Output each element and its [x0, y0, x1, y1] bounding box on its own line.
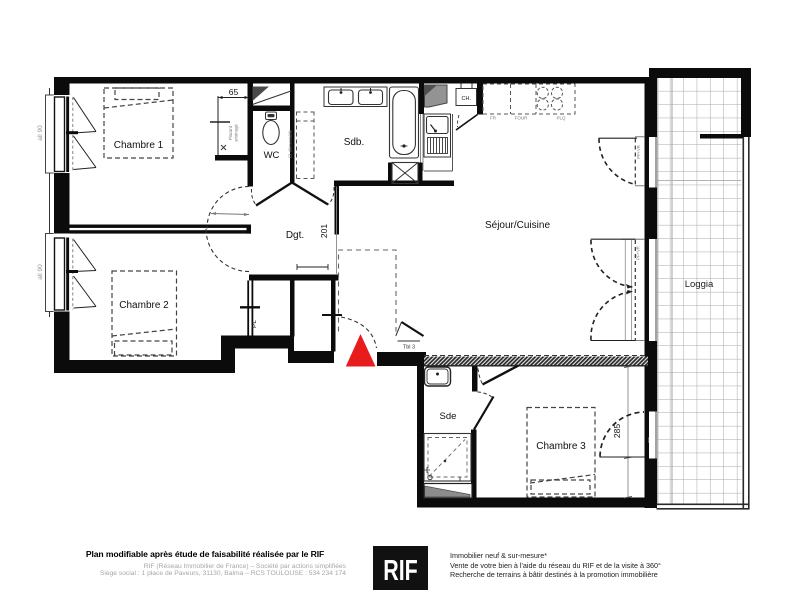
- svg-text:201: 201: [319, 224, 329, 238]
- svg-text:65: 65: [229, 87, 239, 97]
- svg-text:CH.: CH.: [462, 96, 472, 102]
- svg-text:Séjour/Cuisine: Séjour/Cuisine: [485, 220, 550, 231]
- svg-text:PF+VR: PF+VR: [636, 145, 641, 159]
- svg-text:FR: FR: [490, 116, 497, 121]
- svg-text:all 90: all 90: [37, 125, 44, 141]
- svg-text:Sde: Sde: [440, 411, 457, 422]
- svg-text:Cl. démontable: Cl. démontable: [288, 129, 293, 158]
- svg-text:PF: PF: [648, 437, 653, 443]
- svg-text:PF+VR: PF+VR: [636, 246, 641, 260]
- svg-text:PL: PL: [251, 320, 258, 328]
- svg-text:Loggia: Loggia: [685, 279, 714, 290]
- svg-text:Dgt.: Dgt.: [286, 230, 304, 241]
- svg-text:RIF: RIF: [383, 555, 418, 587]
- svg-text:PLQ: PLQ: [556, 116, 566, 121]
- svg-text:aménagé: aménagé: [234, 124, 239, 142]
- svg-text:Chambre 2: Chambre 2: [119, 300, 169, 311]
- svg-text:Chambre 3: Chambre 3: [536, 441, 586, 452]
- svg-text:Placard: Placard: [228, 125, 233, 140]
- svg-text:all 90: all 90: [37, 264, 44, 280]
- svg-text:FOUR: FOUR: [515, 116, 528, 121]
- svg-text:Tbl 3: Tbl 3: [403, 345, 415, 351]
- svg-text:Chambre 1: Chambre 1: [114, 140, 164, 151]
- svg-text:WC: WC: [264, 150, 280, 161]
- svg-text:Sdb.: Sdb.: [344, 137, 365, 148]
